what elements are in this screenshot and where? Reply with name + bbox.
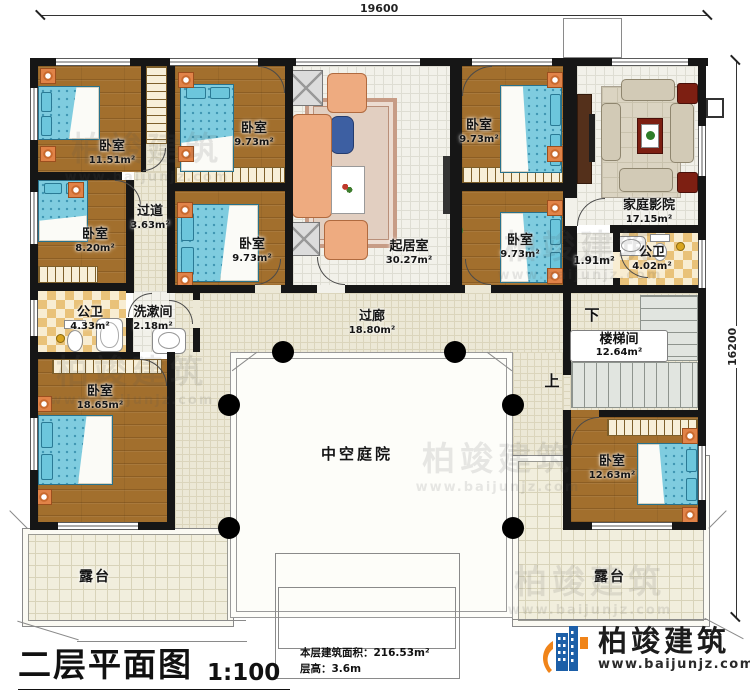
room-name: 卧室 — [234, 122, 273, 137]
floor-height-row: 层高：3.6m — [300, 662, 430, 678]
label-courtyard: 中空庭院 — [321, 446, 393, 463]
nightstand — [682, 428, 698, 444]
room-area: 18.80m² — [349, 325, 395, 336]
sofa — [292, 114, 332, 218]
bed-sheet — [501, 86, 529, 172]
pillow — [41, 92, 52, 112]
column-dot — [272, 341, 294, 363]
company-logo: 柏竣建筑 www.baijunjz.com — [538, 622, 750, 676]
bed — [637, 443, 698, 505]
label-bedroom-bl: 卧室 18.65m² — [77, 385, 123, 411]
room-name: 卧室 — [232, 238, 271, 253]
wall — [167, 66, 175, 293]
person-figure — [330, 116, 354, 154]
room-name: 卧室 — [75, 228, 114, 243]
room-name: 公卫 — [632, 246, 671, 261]
wall — [462, 183, 563, 191]
canopy-outline-inner — [278, 587, 456, 649]
label-terrace-left: 露台 — [79, 570, 111, 586]
label-bedroom-ml: 卧室 8.20m² — [75, 228, 114, 254]
plan-title: 二层平面图 — [18, 638, 193, 686]
wall — [126, 318, 133, 352]
label-living-room: 起居室 30.27m² — [386, 240, 432, 266]
pillow — [686, 478, 697, 501]
room-area: 2.18m² — [133, 321, 172, 332]
pillow — [181, 247, 194, 275]
label-bath-left: 公卫 4.33m² — [70, 306, 109, 332]
wall-bay — [706, 98, 724, 118]
plan-scale: 1:100 — [207, 660, 280, 686]
bed-sheet — [69, 87, 99, 139]
room-area: 9.73m² — [500, 249, 539, 260]
pillow — [186, 87, 206, 99]
wall — [450, 58, 462, 293]
nightstand — [178, 72, 194, 88]
room-name: 中空庭院 — [321, 446, 393, 463]
dimension-top-value: 19600 — [356, 2, 402, 15]
wall — [193, 328, 200, 352]
wall — [285, 58, 293, 293]
accent-chair — [677, 172, 698, 193]
column-dot — [502, 517, 524, 539]
window — [30, 418, 38, 470]
wardrobe-ml — [38, 266, 98, 283]
pillow — [550, 219, 561, 245]
pillow — [41, 454, 53, 480]
floor-height-value: 3.6m — [332, 663, 362, 675]
pillow — [550, 94, 561, 126]
nightstand — [547, 72, 563, 88]
room-name: 过廊 — [349, 310, 395, 325]
room-name: 洗漱间 — [133, 306, 172, 321]
logo-text: 柏竣建筑 www.baijunjz.com — [598, 626, 750, 671]
stairwell-area: 12.64m² — [571, 348, 667, 358]
room-area: 11.51m² — [89, 155, 135, 166]
window — [612, 58, 688, 66]
bed — [38, 86, 100, 140]
window — [592, 522, 672, 530]
wall — [563, 417, 571, 530]
nightstand — [68, 182, 84, 198]
room-name: 起居室 — [386, 240, 432, 255]
label-vestibule: 1.91m² — [573, 256, 614, 268]
label-bedroom-mr: 卧室 9.73m² — [500, 234, 539, 260]
stairs-down-label: 下 — [584, 304, 599, 325]
side-table — [289, 70, 323, 106]
roof-line-br-1 — [512, 619, 708, 620]
room-hallway — [134, 172, 167, 291]
parapet-diag-tr — [708, 510, 726, 528]
nightstand — [36, 489, 52, 505]
window — [296, 58, 420, 66]
room-name: 卧室 — [89, 140, 135, 155]
accent-chair — [677, 83, 698, 104]
room-area: 1.91m² — [573, 256, 614, 268]
wall — [38, 172, 122, 180]
pillow — [41, 116, 52, 136]
armchair — [327, 73, 367, 113]
pillow — [44, 183, 62, 194]
room-name: 家庭影院 — [623, 199, 675, 214]
room-area: 3.63m² — [130, 220, 169, 231]
wall — [167, 352, 175, 522]
room-area: 30.27m² — [386, 255, 432, 266]
theater-sofa — [670, 103, 694, 163]
label-hallway: 过道 3.63m² — [130, 205, 169, 231]
window — [698, 240, 706, 288]
window — [30, 300, 38, 336]
pillow — [41, 422, 53, 448]
nightstand — [547, 200, 563, 216]
room-area: 4.33m² — [70, 321, 109, 332]
shaft-outline — [563, 18, 622, 58]
stairwell-label-box: 楼梯间 12.64m² — [570, 330, 668, 362]
floor-drain — [56, 334, 65, 343]
wall — [175, 183, 285, 191]
window — [698, 126, 706, 176]
room-area: 18.65m² — [77, 400, 123, 411]
room-area: 8.20m² — [75, 243, 114, 254]
nightstand — [547, 268, 563, 284]
column-dot — [218, 394, 240, 416]
label-terrace-right: 露台 — [594, 570, 626, 586]
roof-line-bl-1 — [30, 620, 246, 621]
window — [58, 522, 138, 530]
nightstand — [40, 68, 56, 84]
nightstand — [682, 507, 698, 523]
wall — [610, 225, 706, 233]
room-name: 卧室 — [500, 234, 539, 249]
room-area: 12.63m² — [589, 470, 635, 481]
door-opening — [465, 285, 491, 293]
bed — [38, 415, 113, 485]
parapet-diag-tl — [9, 510, 27, 528]
bed-sheet — [638, 444, 665, 504]
nightstand — [547, 146, 563, 162]
tv-theater — [589, 114, 595, 162]
label-bedroom-tm: 卧室 9.73m² — [234, 122, 273, 148]
floor-area-label: 本层建筑面积： — [300, 647, 374, 659]
floor-plan-canvas: 楼梯间 12.64m² 下 上 — [0, 0, 750, 690]
column-dot — [502, 394, 524, 416]
column-dot — [218, 517, 240, 539]
floor-area-value: 216.53m² — [374, 647, 430, 659]
logo-icon — [538, 622, 592, 676]
room-name: 卧室 — [77, 385, 123, 400]
title-block: 二层平面图 1:100 — [18, 638, 290, 690]
theater-chaise — [601, 103, 621, 161]
wall — [38, 283, 126, 291]
floor-area-row: 本层建筑面积：216.53m² — [300, 646, 430, 662]
label-bedroom-tr: 卧室 9.73m² — [459, 119, 498, 145]
theater-sofa — [619, 168, 673, 192]
terrace-left — [22, 528, 234, 627]
closet-hatch — [146, 66, 167, 144]
label-home-theater: 家庭影院 17.15m² — [623, 199, 675, 225]
stairs-up-label: 上 — [544, 370, 559, 391]
room-area: 4.02m² — [632, 261, 671, 272]
plant — [646, 131, 655, 140]
dimension-line-top — [40, 15, 708, 16]
floor-drain — [676, 242, 685, 251]
armchair — [324, 220, 368, 260]
pillow — [686, 449, 697, 472]
logo-company-name: 柏竣建筑 — [598, 626, 750, 656]
nightstand — [40, 146, 56, 162]
room-name: 公卫 — [70, 306, 109, 321]
room-name: 卧室 — [459, 119, 498, 134]
table-flowers — [341, 182, 353, 194]
floor-height-label: 层高： — [300, 663, 332, 675]
label-bedroom-tl: 卧室 11.51m² — [89, 140, 135, 166]
door-opening — [571, 410, 599, 417]
toilet-tank — [650, 234, 670, 242]
stairs-lower-flight — [571, 362, 698, 408]
label-gallery: 过廊 18.80m² — [349, 310, 395, 336]
room-name: 露台 — [79, 570, 111, 586]
nightstand — [177, 202, 193, 218]
room-name: 过道 — [130, 205, 169, 220]
stairwell-name: 楼梯间 — [571, 332, 667, 348]
washbasin-bowl — [158, 332, 180, 349]
room-name: 卧室 — [589, 455, 635, 470]
pillow — [210, 87, 230, 99]
room-name: 露台 — [594, 570, 626, 586]
toilet-bowl — [67, 330, 83, 352]
door-opening — [193, 300, 200, 328]
logo-website: www.baijunjz.com — [598, 657, 750, 672]
door-opening — [565, 198, 577, 226]
window — [472, 58, 552, 66]
door-opening — [317, 285, 345, 293]
room-area: 17.15m² — [623, 214, 675, 225]
window — [170, 58, 258, 66]
room-area: 9.73m² — [232, 253, 271, 264]
plan-info: 本层建筑面积：216.53m² 层高：3.6m — [300, 646, 430, 678]
label-bath-right: 公卫 4.02m² — [632, 246, 671, 272]
nightstand — [36, 396, 52, 412]
window — [56, 58, 130, 66]
column-dot — [444, 341, 466, 363]
door-opening — [255, 285, 281, 293]
theater-sofa — [621, 79, 675, 101]
window — [30, 88, 38, 140]
label-bedroom-br: 卧室 12.63m² — [589, 455, 635, 481]
bed-sheet — [78, 416, 112, 484]
dimension-right-value: 16200 — [726, 326, 739, 368]
nightstand — [178, 146, 194, 162]
window — [698, 446, 706, 500]
label-washroom: 洗漱间 2.18m² — [133, 306, 172, 332]
wall — [30, 352, 140, 359]
room-area: 9.73m² — [234, 137, 273, 148]
label-bedroom-mm: 卧室 9.73m² — [232, 238, 271, 264]
room-area: 9.73m² — [459, 134, 498, 145]
window — [30, 192, 38, 244]
